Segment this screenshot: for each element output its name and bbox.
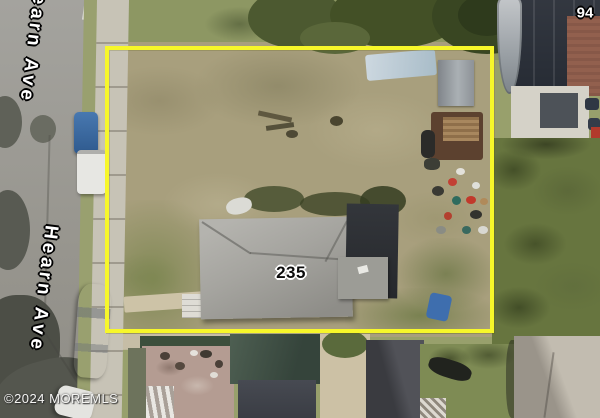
patio-clutter [200, 350, 212, 358]
mls-copyright-watermark: ©2024 MOREMLS [4, 391, 118, 406]
neighbor-patio-panel [540, 93, 578, 128]
neighbor-hip-roof-light [514, 336, 600, 418]
parked-vehicle-blue [74, 112, 98, 154]
yard-object [585, 98, 599, 110]
neighbor-dark-roof [238, 380, 316, 418]
tree-mass-right [492, 138, 600, 350]
patio-clutter [190, 350, 198, 356]
parked-vehicle-white-van [77, 150, 106, 194]
neighbor-green-roof [230, 334, 324, 384]
parcel-boundary-outline [105, 46, 494, 333]
shadow-patch [128, 348, 146, 418]
patio-clutter [215, 360, 223, 368]
neighbor-brick-house [567, 16, 600, 96]
patio-clutter-streaks [146, 386, 174, 418]
tree-shadow [30, 115, 56, 143]
yard-debris [420, 398, 446, 418]
patio-clutter [210, 372, 218, 378]
neighbor-hip-roof-dark [366, 340, 424, 418]
aerial-map-view[interactable]: Hearn Ave Hearn Ave 235 94 ©2024 MOREMLS [0, 0, 600, 418]
parcel-house-number: 235 [276, 263, 306, 283]
tree-canopy [322, 330, 368, 358]
neighbor-house-number: 94 [577, 5, 594, 22]
patio-clutter [160, 352, 170, 360]
patio-clutter [175, 362, 185, 370]
